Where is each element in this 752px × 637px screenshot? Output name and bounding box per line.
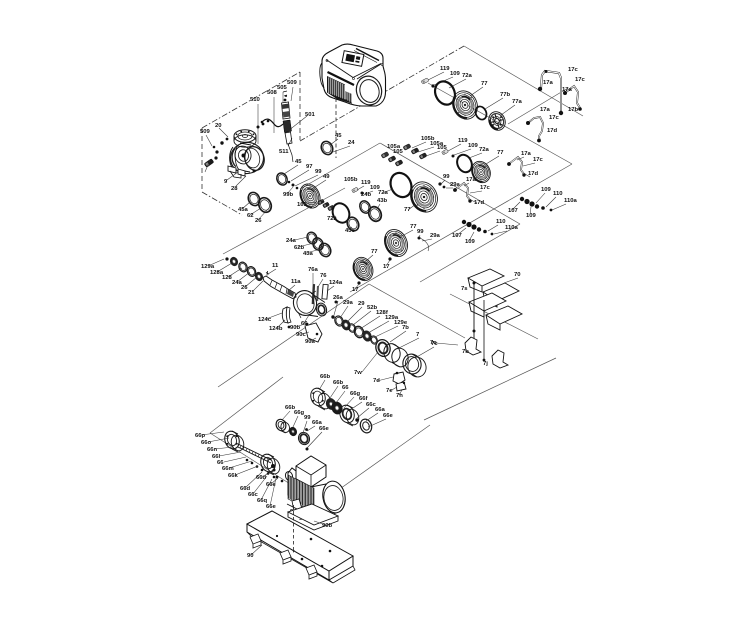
svg-text:17b: 17b <box>568 107 579 113</box>
svg-text:66k: 66k <box>228 473 239 479</box>
svg-text:17a: 17a <box>540 107 551 113</box>
svg-text:107: 107 <box>452 233 463 239</box>
svg-text:109: 109 <box>450 71 461 77</box>
svg-text:45: 45 <box>295 159 302 165</box>
svg-text:24b: 24b <box>361 192 372 198</box>
svg-text:7d: 7d <box>373 378 380 384</box>
svg-text:43b: 43b <box>377 198 388 204</box>
svg-text:17a: 17a <box>521 151 532 157</box>
svg-text:17c: 17c <box>568 67 579 73</box>
svg-text:66o: 66o <box>201 440 212 446</box>
svg-text:66e: 66e <box>319 426 330 432</box>
svg-text:124c: 124c <box>258 317 272 323</box>
svg-text:124a: 124a <box>329 280 343 286</box>
svg-text:97: 97 <box>306 164 313 170</box>
svg-text:119: 119 <box>458 138 468 144</box>
svg-text:66e: 66e <box>383 413 394 419</box>
svg-text:109: 109 <box>526 213 537 219</box>
svg-text:511: 511 <box>279 149 289 155</box>
svg-text:7b: 7b <box>462 349 469 355</box>
svg-text:11: 11 <box>272 263 279 269</box>
svg-text:7w: 7w <box>354 370 362 376</box>
svg-text:66n: 66n <box>207 447 218 453</box>
svg-text:28: 28 <box>231 186 238 192</box>
svg-text:109: 109 <box>468 143 479 149</box>
svg-text:508: 508 <box>267 90 278 96</box>
svg-text:77: 77 <box>481 81 488 87</box>
svg-text:17a: 17a <box>543 80 554 86</box>
svg-text:43a: 43a <box>303 251 314 257</box>
svg-text:72a: 72a <box>378 190 389 196</box>
svg-text:17c: 17c <box>549 115 560 121</box>
svg-text:77: 77 <box>497 150 504 156</box>
svg-text:72a: 72a <box>327 216 338 222</box>
svg-text:76: 76 <box>320 273 327 279</box>
svg-text:510: 510 <box>250 97 261 103</box>
svg-text:72a: 72a <box>462 73 473 79</box>
svg-text:29a: 29a <box>343 300 354 306</box>
svg-text:77a: 77a <box>512 99 523 105</box>
svg-text:17a: 17a <box>562 87 573 93</box>
svg-text:66g: 66g <box>294 410 305 416</box>
svg-text:90a: 90a <box>305 339 316 345</box>
svg-text:99: 99 <box>304 415 311 421</box>
svg-text:17c: 17c <box>533 157 544 163</box>
svg-text:509: 509 <box>287 80 298 86</box>
svg-text:17d: 17d <box>528 171 539 177</box>
svg-text:7s: 7s <box>461 286 468 292</box>
svg-text:7b: 7b <box>402 325 409 331</box>
svg-text:7e: 7e <box>386 388 393 394</box>
svg-text:66e: 66e <box>266 504 277 510</box>
svg-text:66d: 66d <box>256 475 267 481</box>
svg-text:105b: 105b <box>344 177 358 183</box>
svg-text:66e: 66e <box>266 482 277 488</box>
svg-text:17c: 17c <box>575 77 586 83</box>
svg-text:77: 77 <box>404 207 411 213</box>
svg-text:11a: 11a <box>291 279 301 285</box>
svg-text:119: 119 <box>440 66 450 72</box>
svg-text:505: 505 <box>277 85 288 91</box>
svg-text:105: 105 <box>393 149 404 155</box>
svg-text:29a: 29a <box>430 233 441 239</box>
svg-text:77: 77 <box>371 249 378 255</box>
svg-text:110a: 110a <box>505 225 519 231</box>
svg-text:17a: 17a <box>466 177 477 183</box>
svg-text:24: 24 <box>348 140 355 146</box>
svg-text:501: 501 <box>305 112 316 118</box>
svg-text:17c: 17c <box>480 185 491 191</box>
svg-text:90: 90 <box>247 553 254 559</box>
svg-text:21: 21 <box>248 290 255 296</box>
svg-text:110: 110 <box>553 191 563 197</box>
svg-text:17d: 17d <box>547 128 558 134</box>
svg-text:76a: 76a <box>308 267 319 273</box>
svg-text:45: 45 <box>335 133 342 139</box>
svg-text:49: 49 <box>323 174 330 180</box>
svg-text:509: 509 <box>200 129 211 135</box>
svg-text:124b: 124b <box>269 326 283 332</box>
svg-text:110a: 110a <box>564 198 578 204</box>
svg-text:43c: 43c <box>345 228 356 234</box>
svg-text:77b: 77b <box>500 92 511 98</box>
svg-text:29: 29 <box>358 301 365 307</box>
svg-text:109: 109 <box>465 239 476 245</box>
svg-text:99: 99 <box>443 174 450 180</box>
svg-text:70: 70 <box>514 272 521 278</box>
svg-text:17d: 17d <box>474 200 485 206</box>
svg-text:20: 20 <box>215 123 222 129</box>
svg-text:72a: 72a <box>479 147 490 153</box>
svg-text:26a: 26a <box>333 295 344 301</box>
svg-text:99: 99 <box>417 229 424 235</box>
svg-text:128: 128 <box>222 275 233 281</box>
svg-text:24a: 24a <box>286 238 297 244</box>
svg-text:66: 66 <box>342 385 349 391</box>
svg-text:99: 99 <box>315 169 322 175</box>
svg-text:105: 105 <box>297 202 308 208</box>
svg-text:109: 109 <box>541 187 552 193</box>
svg-text:90b: 90b <box>322 523 333 529</box>
svg-text:66p: 66p <box>195 433 206 439</box>
svg-text:62: 62 <box>247 213 254 219</box>
svg-text:66b: 66b <box>320 374 331 380</box>
svg-text:7j: 7j <box>483 361 488 367</box>
